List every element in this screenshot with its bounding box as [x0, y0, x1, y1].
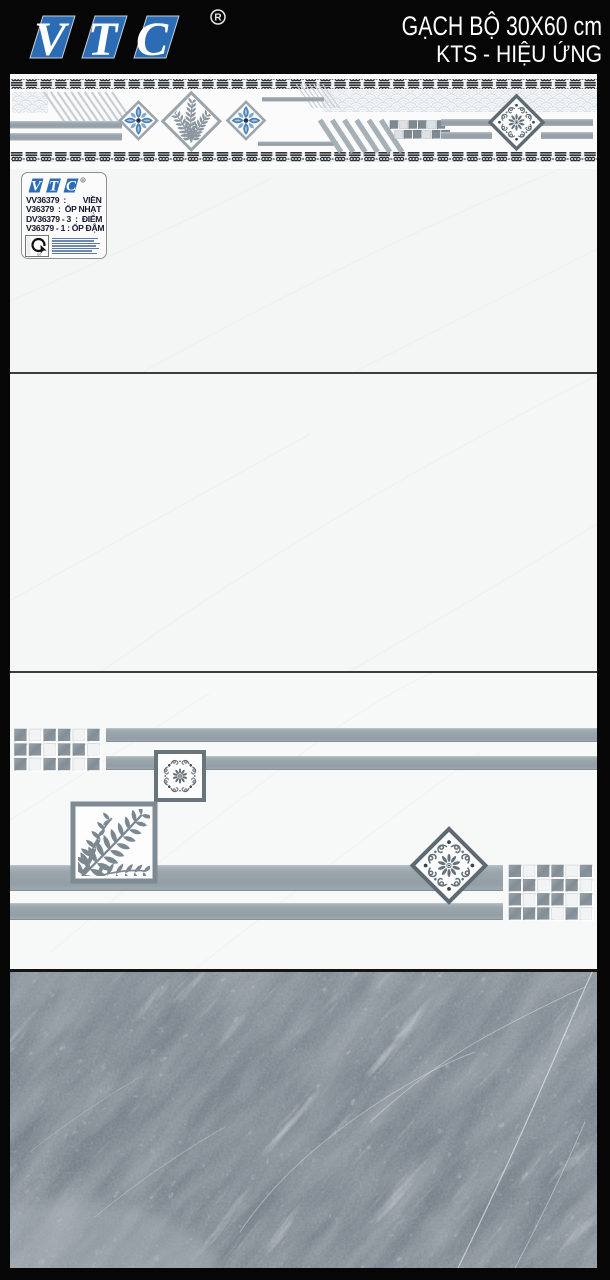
svg-text:C: C — [66, 179, 77, 195]
svg-text:R: R — [82, 179, 85, 183]
svg-text:V: V — [34, 13, 70, 64]
svg-text:T: T — [49, 179, 59, 195]
svg-text:ISO: ISO — [37, 254, 41, 257]
